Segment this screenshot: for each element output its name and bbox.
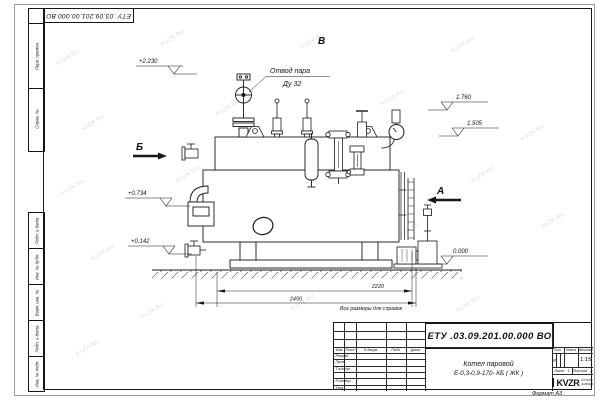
tb-line [556,353,557,367]
tb-sheets-value: 2 [590,368,592,373]
tb-row-utv: Утв. [334,385,358,391]
view-label-a: А [436,186,444,197]
tb-doc-number: ЕТУ .03.09.201.00.000 ВО [425,323,554,349]
view-label-v: В [318,36,325,47]
format-label: Формат А3 [532,391,562,397]
dimension-2220: 2220 [371,284,385,290]
drain-valve [185,241,206,257]
tb-line [334,372,425,373]
tb-row-nkontr: Н.контр. [334,378,358,384]
tb-row-tkontr: Т.контр. [334,366,358,372]
callout-steam-line1: Отвод пара [270,67,310,75]
safety-valve [272,99,283,137]
tb-sheets-label: Листов [573,368,588,373]
view-label-b: Б [136,142,143,153]
tb-product-line2: Е-0,3-0,9-170- КБ ( ЖК ) [454,370,523,377]
safety-valve [302,99,313,137]
tb-col-doc: N докум. [356,347,386,353]
tb-line [334,339,425,340]
tb-line [560,353,561,367]
callout-steam-line2: Ду 32 [282,81,301,88]
elevation-0142: +0.142 [131,239,150,245]
ladder [408,178,414,240]
tb-sheet-label: Лист [554,368,564,373]
elevation-0000: 0.000 [453,249,469,255]
kvzr-logo-subtext: КОТЕЛЬНЫЙ ЗАВОД РЭП [581,379,593,386]
view-arrow-a [427,197,461,204]
elevation-0734: +0.734 [128,191,147,197]
tb-col-data: Дата [406,347,425,353]
tb-lit-value: И [552,353,556,367]
tb-scale-value: 1:15 [578,353,593,367]
elevation-2230: +2.230 [139,59,158,65]
tb-line [406,323,407,391]
view-arrow-b [133,153,167,160]
downcomer-pipes [399,172,407,240]
ground-hatch [152,270,462,279]
elevation-1505: 1.505 [467,121,483,127]
kvzr-logo-icon [552,378,554,387]
tb-row-prov: Пров. [334,359,358,365]
kvzr-logo-text: KVZR [556,378,579,388]
tb-sheets: Листов 2 [572,367,593,374]
drawing-sheet: KVZR.RU KVZR.RU KVZR.RU KVZR.RU KVZR.RU … [0,0,600,400]
tb-line [386,323,387,391]
support-skid [230,242,392,268]
tb-col-podp: Подп. [386,347,406,353]
drum-top-valve [356,111,368,137]
tb-line [334,331,425,332]
dimension-2450: 2450 [289,297,303,303]
tb-product-line1: Котел паровой [463,361,513,368]
side-valve [182,144,198,160]
boiler-drum [215,137,390,170]
elevation-1760: 1.760 [456,95,472,101]
reference-note: Все размеры для справок [340,306,402,312]
tb-product-name: Котел паровой Е-0,3-0,9-170- КБ ( ЖК ) [425,347,552,391]
boiler-body [203,170,399,242]
tb-sheet-value: 1 [568,368,570,373]
title-block: Изм Лист N докум. Подп. Дата Разраб. Про… [333,322,592,390]
water-column [305,133,318,187]
tb-sheet: Лист 1 [552,367,572,374]
tb-mass-label: Масса [564,347,578,353]
kvzr-logo-sub2: ЗАВОД РЭП [581,383,593,387]
lifting-lug [246,127,264,138]
tb-logo-cell: KVZR КОТЕЛЬНЫЙ ЗАВОД РЭП [552,374,593,391]
